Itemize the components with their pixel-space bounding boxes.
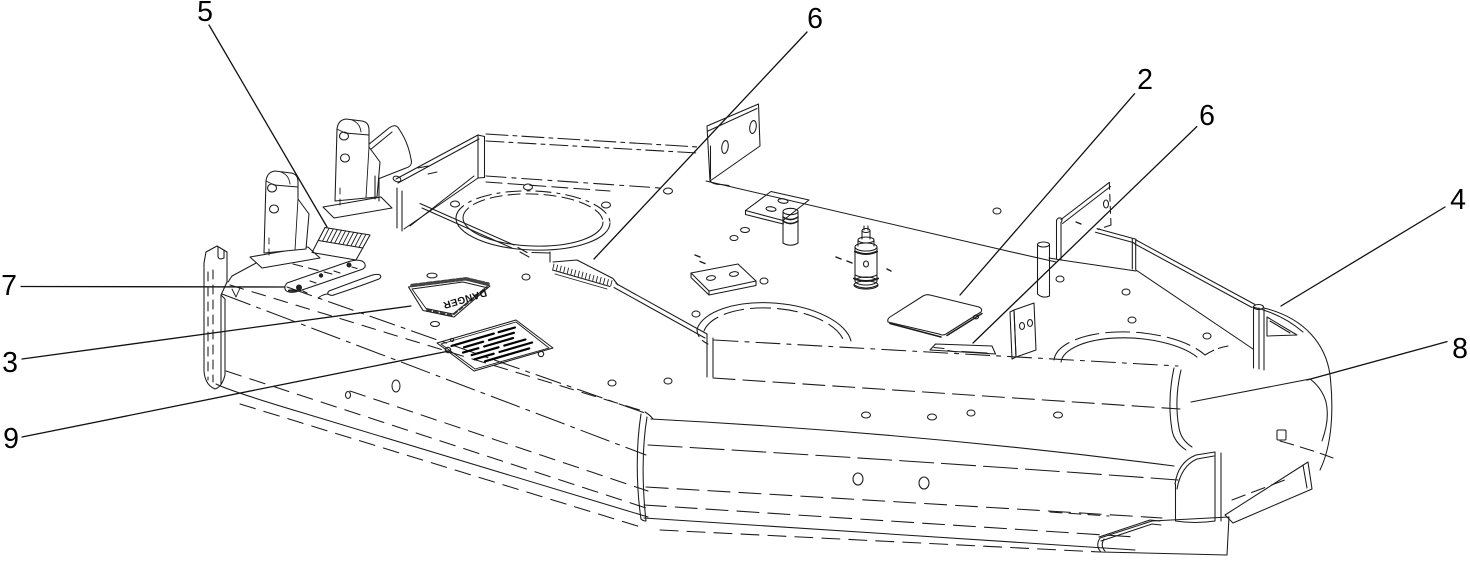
svg-text:2: 2 bbox=[1137, 64, 1153, 96]
svg-text:8: 8 bbox=[1452, 333, 1468, 365]
svg-text:6: 6 bbox=[807, 3, 823, 35]
svg-text:4: 4 bbox=[1450, 184, 1466, 216]
svg-text:7: 7 bbox=[1, 270, 17, 302]
svg-text:9: 9 bbox=[3, 423, 19, 455]
svg-text:5: 5 bbox=[197, 0, 213, 28]
svg-text:3: 3 bbox=[2, 347, 18, 379]
svg-text:6: 6 bbox=[1199, 100, 1215, 132]
